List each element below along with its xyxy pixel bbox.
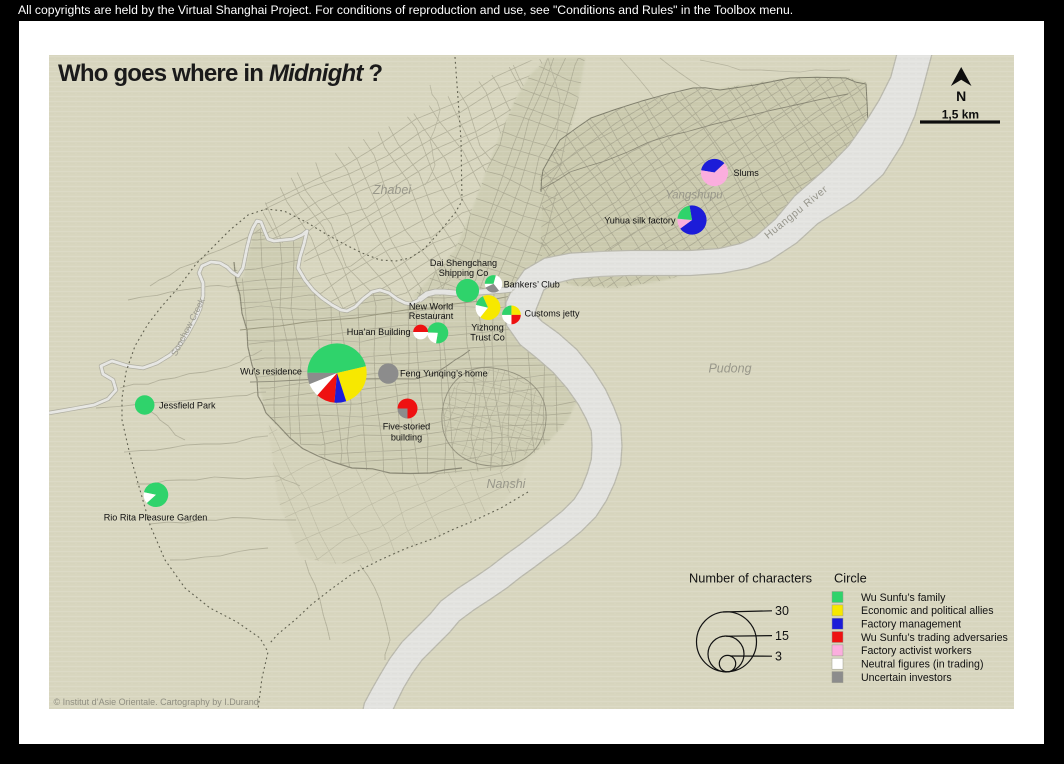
svg-text:Circle: Circle xyxy=(834,571,867,586)
svg-text:Nanshi: Nanshi xyxy=(487,477,527,491)
svg-text:Factory management: Factory management xyxy=(861,619,961,631)
svg-text:Who goes where in Midnight ?: Who goes where in Midnight ? xyxy=(58,60,382,87)
svg-text:© Institut d’Asie Orientale. C: © Institut d’Asie Orientale. Cartography… xyxy=(54,697,259,707)
svg-text:Hua’an Building: Hua’an Building xyxy=(347,327,411,337)
svg-text:Uncertain investors: Uncertain investors xyxy=(861,672,952,684)
svg-text:Yuhua silk factory: Yuhua silk factory xyxy=(604,216,676,226)
svg-text:Dai Shengchang: Dai Shengchang xyxy=(430,258,497,268)
svg-text:Economic and political allies: Economic and political allies xyxy=(861,605,994,617)
svg-text:Pudong: Pudong xyxy=(708,362,751,376)
svg-text:Factory activist workers: Factory activist workers xyxy=(861,645,972,657)
svg-text:Wu Sunfu’s trading adversaries: Wu Sunfu’s trading adversaries xyxy=(861,632,1008,644)
svg-text:15: 15 xyxy=(775,629,789,643)
svg-text:3: 3 xyxy=(775,650,782,664)
svg-text:Restaurant: Restaurant xyxy=(409,311,454,321)
svg-text:Rio Rita Pleasure Garden: Rio Rita Pleasure Garden xyxy=(104,513,208,523)
svg-text:N: N xyxy=(956,88,966,104)
svg-text:Slums: Slums xyxy=(734,168,760,178)
svg-text:building: building xyxy=(391,433,422,443)
svg-text:Wu’s residence: Wu’s residence xyxy=(240,366,302,376)
svg-text:Number of characters: Number of characters xyxy=(689,571,812,586)
svg-text:Neutral figures (in trading): Neutral figures (in trading) xyxy=(861,659,983,671)
svg-text:Jessfield Park: Jessfield Park xyxy=(159,400,216,410)
svg-text:Zhabei: Zhabei xyxy=(372,183,412,197)
svg-text:Bankers’ Club: Bankers’ Club xyxy=(504,279,560,289)
svg-text:Feng Yunqing’s home: Feng Yunqing’s home xyxy=(400,369,488,379)
svg-text:Wu Sunfu’s family: Wu Sunfu’s family xyxy=(861,592,946,604)
svg-text:30: 30 xyxy=(775,604,789,618)
svg-text:Customs jetty: Customs jetty xyxy=(525,308,581,318)
svg-text:Yangshupu: Yangshupu xyxy=(665,190,723,202)
svg-text:Shipping Co: Shipping Co xyxy=(439,268,489,278)
svg-text:New World: New World xyxy=(409,301,453,311)
svg-text:Trust Co: Trust Co xyxy=(470,332,505,342)
svg-text:Yizhong: Yizhong xyxy=(471,323,504,333)
svg-text:Five-storied: Five-storied xyxy=(383,422,431,432)
svg-text:1,5 km: 1,5 km xyxy=(942,108,979,122)
